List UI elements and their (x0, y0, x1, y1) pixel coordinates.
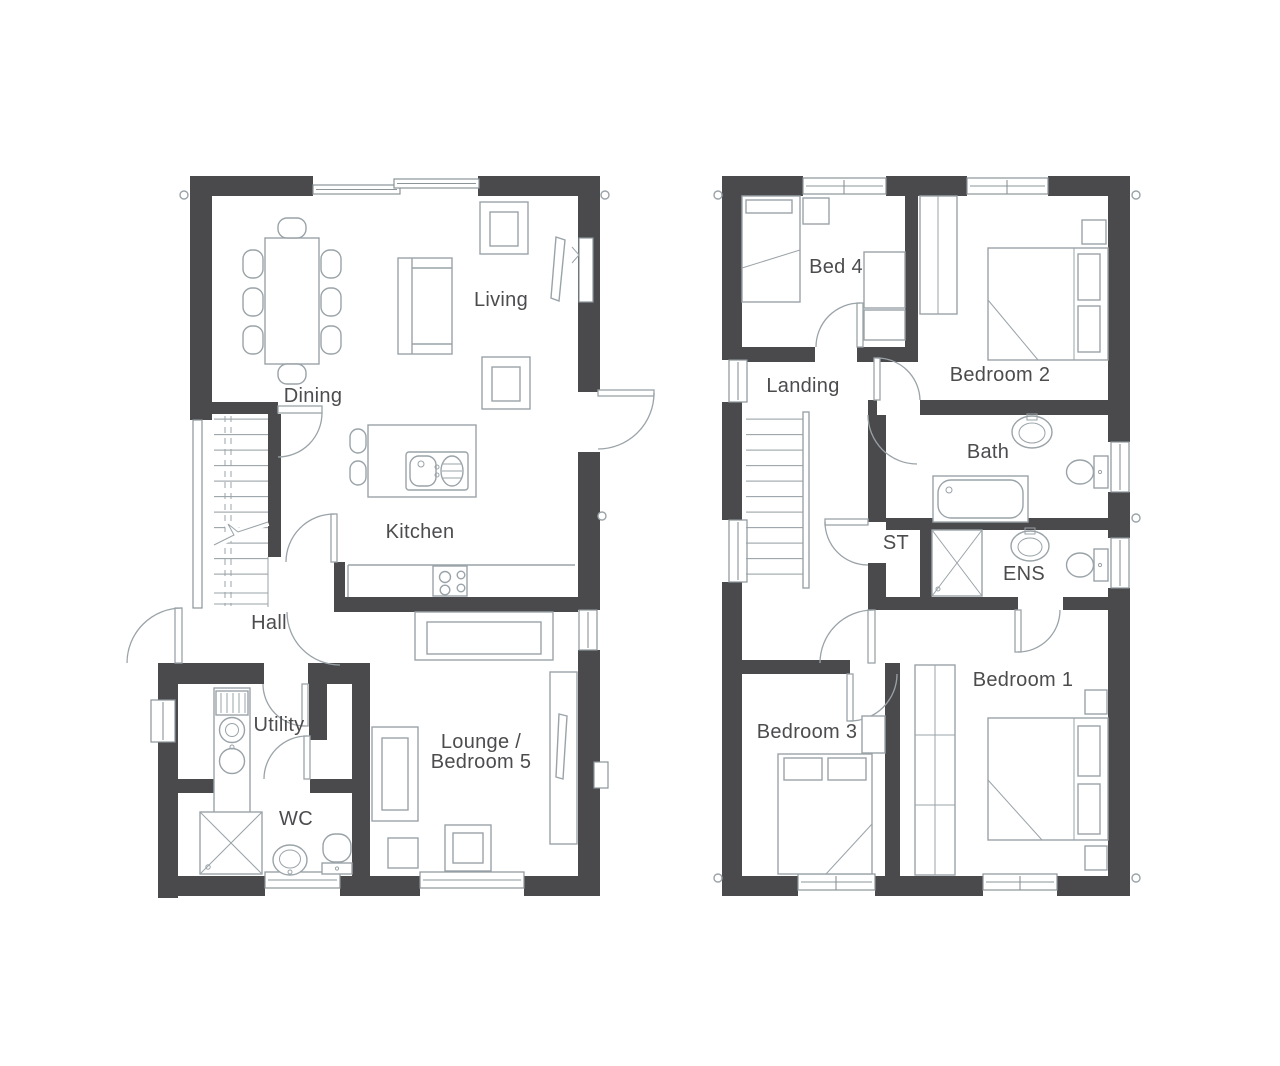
bed4-single-bed (742, 196, 800, 302)
bedroom3-bed (778, 754, 872, 874)
bed4-wardrobe (864, 252, 905, 340)
room-label-hall: Hall (251, 612, 287, 634)
first-stairs (746, 412, 809, 588)
lounge-armchair (445, 825, 491, 871)
lounge-sofa-top (415, 612, 553, 660)
ens-shower (932, 530, 982, 596)
bedroom2-wardrobe (920, 196, 957, 314)
utility-window (151, 700, 175, 742)
lounge-wardrobe (550, 672, 577, 844)
room-label-st: ST (883, 532, 909, 554)
lounge-window (420, 872, 524, 888)
lounge-sofa-left (372, 727, 418, 821)
wc-toilet (322, 834, 352, 874)
room-label-lounge-line2: Bedroom 5 (431, 751, 532, 773)
bed4-door (816, 303, 863, 347)
bath-toilet (1067, 456, 1109, 488)
room-label-bedroom2: Bedroom 2 (950, 364, 1051, 386)
bath-window (1111, 442, 1129, 492)
room-label-kitchen: Kitchen (386, 521, 455, 543)
room-label-bed4: Bed 4 (809, 256, 863, 278)
ens-window (1111, 538, 1129, 588)
dining-table (265, 238, 319, 364)
room-label-ens: ENS (1003, 563, 1045, 585)
front-door (127, 608, 182, 663)
wc-door (264, 736, 310, 779)
room-label-bath: Bath (967, 441, 1009, 463)
living-armchair-bottom (482, 357, 530, 409)
bedroom2-door (874, 358, 920, 400)
floorplan-page: Dining Living Kitchen Hall Utility WC Lo… (0, 0, 1280, 1066)
living-sofa (398, 258, 452, 354)
room-label-utility: Utility (254, 714, 305, 736)
utility-appliances (214, 688, 250, 822)
bedroom3-window (798, 874, 875, 890)
ens-door (1015, 610, 1060, 652)
kitchen-island (368, 425, 476, 497)
st-door (825, 519, 868, 565)
ground-stairs (214, 414, 268, 607)
room-label-landing: Landing (766, 375, 839, 397)
ens-toilet (1067, 549, 1109, 581)
wc-shower (200, 812, 262, 874)
kitchen-door (286, 514, 340, 665)
stairwell-window (729, 520, 747, 582)
bathtub (933, 476, 1028, 522)
room-label-living: Living (474, 289, 528, 311)
dining-door (278, 406, 322, 457)
bedroom1-wardrobe (915, 665, 955, 875)
room-label-wc: WC (279, 808, 313, 830)
wc-basin (273, 845, 307, 875)
patio-door (598, 390, 654, 449)
room-label-dining: Dining (284, 385, 343, 407)
kitchen-counter (348, 565, 575, 597)
bedroom2-side-table (1082, 220, 1106, 244)
bath-basin (1012, 414, 1052, 448)
living-armchair-top (480, 202, 528, 254)
kitchen-side-window (579, 610, 597, 650)
living-tv (551, 237, 579, 301)
bed4-side-table (803, 198, 829, 224)
room-label-bedroom1: Bedroom 1 (973, 669, 1074, 691)
kitchen-stools (350, 429, 366, 485)
lounge-side-table (388, 838, 418, 868)
room-label-bedroom3: Bedroom 3 (757, 721, 858, 743)
bedroom1-door (820, 610, 875, 663)
room-label-lounge-line1: Lounge / (441, 731, 521, 753)
bedroom2-window (967, 178, 1048, 194)
sliding-door-window (313, 179, 479, 194)
first-floor-plan: Bed 4 Bedroom 2 Landing Bath ST ENS Bedr… (714, 176, 1140, 896)
ground-floor-plan: Dining Living Kitchen Hall Utility WC Lo… (127, 176, 654, 898)
floorplan-canvas: Dining Living Kitchen Hall Utility WC Lo… (0, 0, 1280, 1066)
bedroom1-window (983, 874, 1057, 890)
bedroom2-bed (988, 248, 1108, 360)
ens-basin (1011, 528, 1049, 561)
landing-window (729, 360, 747, 402)
bedroom3-wardrobe (862, 716, 885, 753)
bed4-window (803, 178, 886, 194)
bedroom1-bed (988, 718, 1108, 840)
